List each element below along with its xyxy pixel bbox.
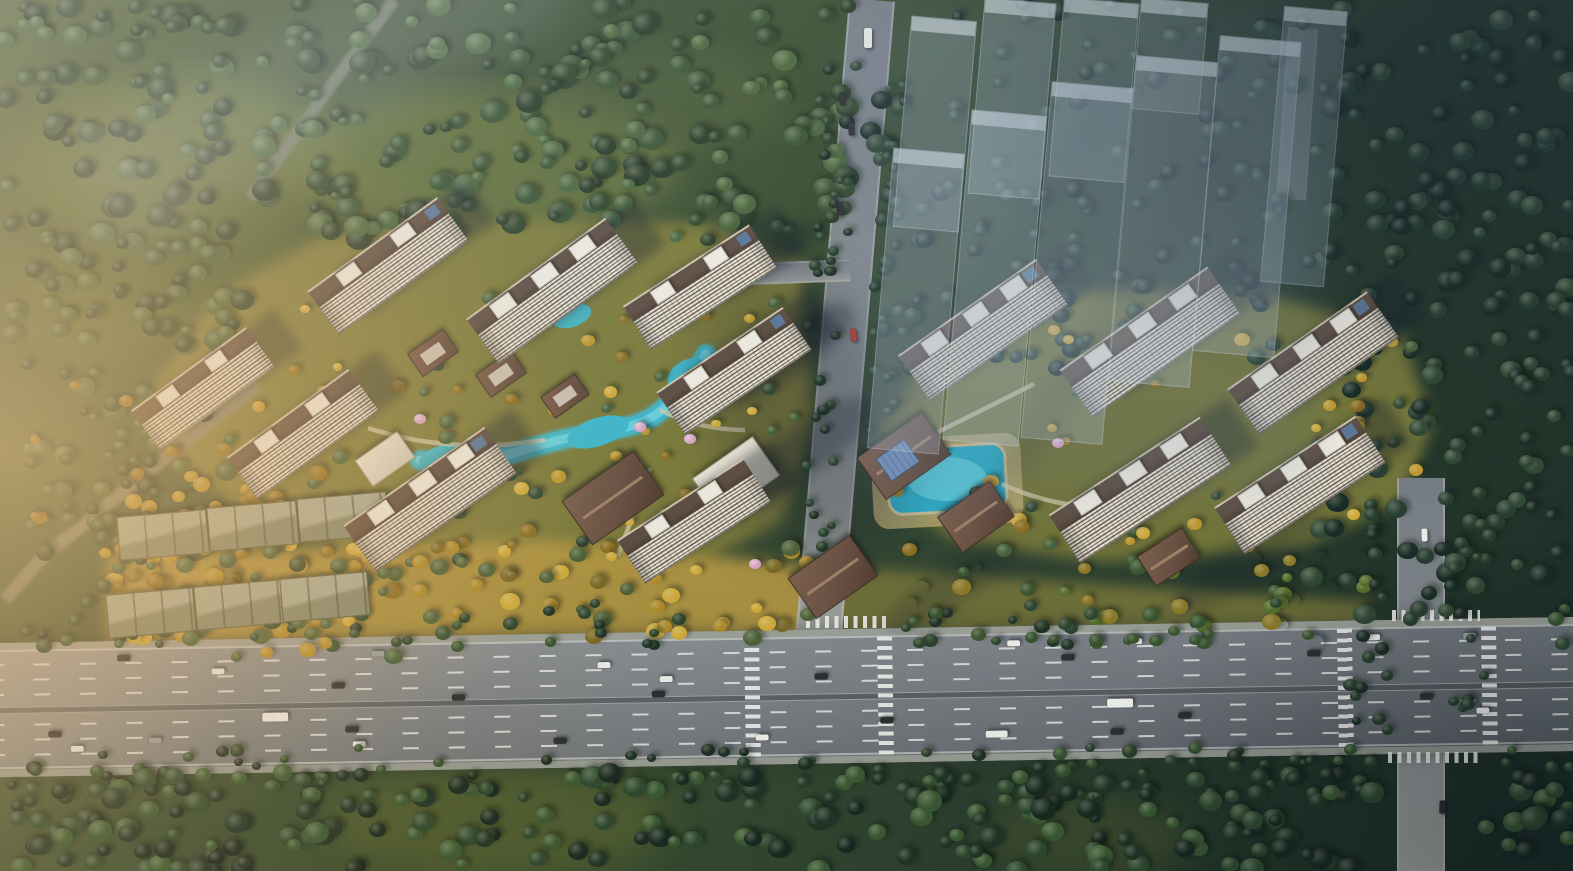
ghost-building (1048, 0, 1139, 183)
ghost-building-top (911, 17, 976, 37)
aerial-rendering (0, 0, 1573, 871)
ghost-building-top (1141, 0, 1208, 18)
ghost-building-top (984, 0, 1055, 18)
ghost-building (1131, 0, 1209, 115)
future-phase-ghost-layer (0, 0, 1573, 871)
ghost-building-top (1064, 0, 1139, 19)
ghost-building-top (1284, 7, 1347, 26)
